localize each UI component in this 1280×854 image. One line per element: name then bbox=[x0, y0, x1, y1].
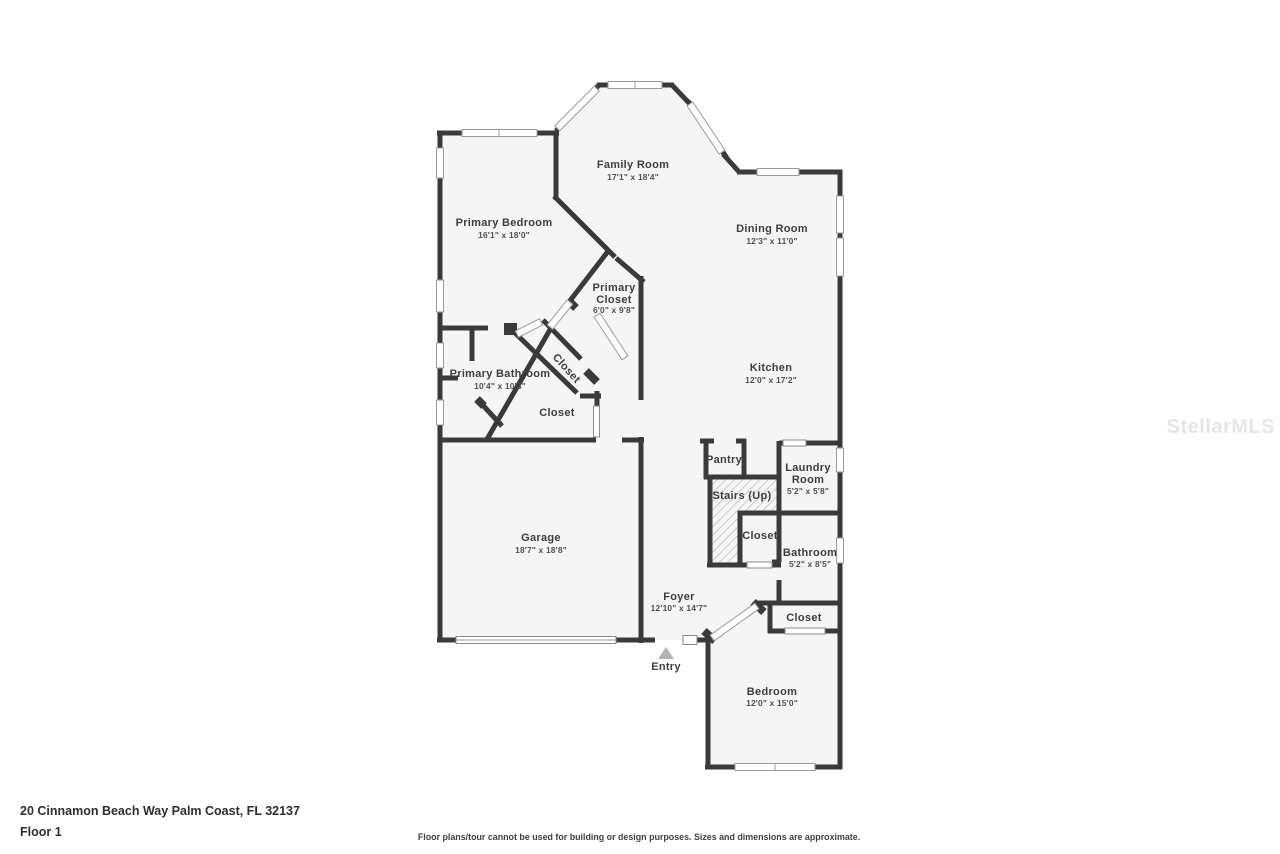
room-label-pantry: Pantry bbox=[706, 454, 743, 466]
room-label-entry: Entry bbox=[651, 661, 681, 673]
svg-text:Family Room: Family Room bbox=[597, 159, 669, 171]
room-label-family-room: Family Room 17'1" x 18'4" bbox=[597, 159, 669, 182]
svg-text:12'0" x 15'0": 12'0" x 15'0" bbox=[746, 698, 798, 708]
svg-text:Bedroom: Bedroom bbox=[747, 686, 797, 698]
svg-text:Dining Room: Dining Room bbox=[736, 223, 808, 235]
floorplan-drawing: Family Room 17'1" x 18'4" Primary Bedroo… bbox=[0, 0, 1280, 854]
property-address: 20 Cinnamon Beach Way Palm Coast, FL 321… bbox=[20, 804, 300, 818]
watermark: StellarMLS bbox=[1167, 416, 1275, 438]
svg-text:5'2" x 5'8": 5'2" x 5'8" bbox=[787, 486, 829, 496]
svg-text:Entry: Entry bbox=[651, 661, 681, 673]
room-label-closet-hall: Closet bbox=[539, 407, 574, 419]
svg-text:17'1" x 18'4": 17'1" x 18'4" bbox=[607, 172, 659, 182]
room-label-bedroom: Bedroom 12'0" x 15'0" bbox=[746, 686, 798, 708]
svg-text:Primary: Primary bbox=[592, 282, 636, 294]
room-label-closet-stairs: Closet bbox=[742, 530, 777, 542]
svg-text:12'3" x 11'0": 12'3" x 11'0" bbox=[746, 236, 797, 246]
svg-text:Primary Bathroom: Primary Bathroom bbox=[450, 368, 551, 380]
svg-text:5'2" x 8'5": 5'2" x 8'5" bbox=[789, 559, 831, 569]
floorplan-page: Family Room 17'1" x 18'4" Primary Bedroo… bbox=[0, 0, 1280, 854]
entry-arrow bbox=[658, 647, 674, 659]
svg-text:Foyer: Foyer bbox=[663, 591, 695, 603]
svg-text:Kitchen: Kitchen bbox=[750, 362, 792, 374]
disclaimer-text: Floor plans/tour cannot be used for buil… bbox=[418, 832, 860, 842]
room-label-primary-closet: Primary Closet 6'0" x 9'8" bbox=[592, 282, 636, 315]
room-label-garage: Garage 18'7" x 18'8" bbox=[515, 532, 567, 555]
entry-door bbox=[683, 636, 697, 645]
room-label-closet-bedroom: Closet bbox=[786, 612, 821, 624]
room-label-bathroom: Bathroom 5'2" x 8'5" bbox=[783, 547, 837, 569]
room-label-stairs: Stairs (Up) bbox=[713, 490, 772, 502]
room-label-dining-room: Dining Room 12'3" x 11'0" bbox=[736, 223, 808, 246]
svg-text:16'1" x 18'0": 16'1" x 18'0" bbox=[478, 230, 530, 240]
svg-text:Room: Room bbox=[792, 474, 824, 486]
svg-text:Closet: Closet bbox=[742, 530, 777, 542]
svg-text:12'10" x 14'7": 12'10" x 14'7" bbox=[651, 603, 708, 613]
room-label-kitchen: Kitchen 12'0" x 17'2" bbox=[745, 362, 797, 385]
svg-text:18'7" x 18'8": 18'7" x 18'8" bbox=[515, 545, 567, 555]
svg-text:12'0" x 17'2": 12'0" x 17'2" bbox=[745, 375, 797, 385]
svg-text:6'0" x 9'8": 6'0" x 9'8" bbox=[593, 305, 635, 315]
svg-text:10'4" x 10'3": 10'4" x 10'3" bbox=[474, 381, 526, 391]
svg-text:Garage: Garage bbox=[521, 532, 561, 544]
svg-text:Primary Bedroom: Primary Bedroom bbox=[456, 217, 553, 229]
svg-text:Closet: Closet bbox=[786, 612, 821, 624]
floor-label: Floor 1 bbox=[20, 825, 62, 839]
svg-text:Laundry: Laundry bbox=[785, 462, 831, 474]
svg-text:Bathroom: Bathroom bbox=[783, 547, 837, 559]
svg-text:Stairs (Up): Stairs (Up) bbox=[713, 490, 772, 502]
svg-text:Pantry: Pantry bbox=[706, 454, 743, 466]
svg-text:Closet: Closet bbox=[539, 407, 574, 419]
